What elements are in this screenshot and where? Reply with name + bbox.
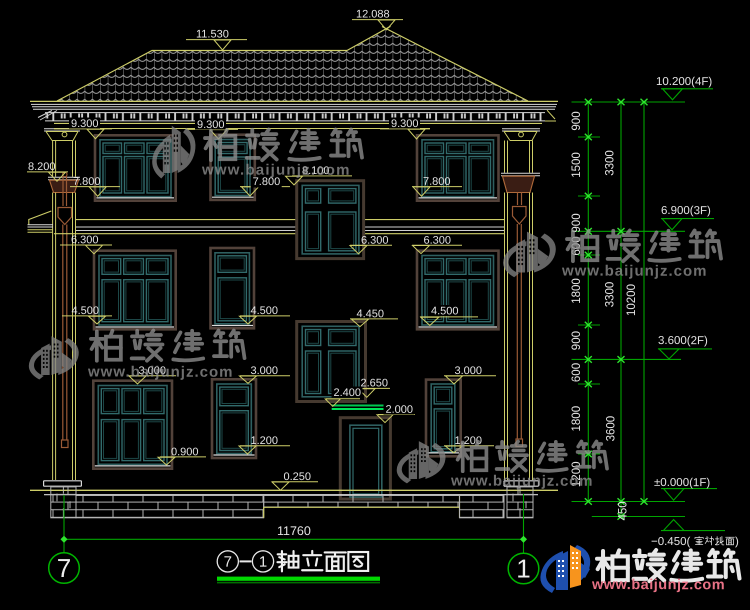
svg-text:2.400: 2.400: [333, 387, 361, 399]
svg-text:450: 450: [618, 501, 630, 520]
svg-text:www.baijunjz.com: www.baijunjz.com: [561, 262, 708, 279]
svg-text:www.baijunjz.com: www.baijunjz.com: [87, 363, 234, 380]
svg-text:0.900: 0.900: [171, 446, 199, 458]
svg-text:10200: 10200: [626, 284, 638, 316]
svg-text:11760: 11760: [277, 524, 311, 538]
svg-text:900: 900: [571, 111, 583, 130]
svg-text:4.500: 4.500: [250, 305, 278, 317]
svg-text:4.500: 4.500: [431, 305, 459, 317]
svg-text:9.300: 9.300: [71, 118, 99, 130]
svg-text:www.baijunjz.com: www.baijunjz.com: [201, 161, 351, 178]
svg-text:10.200(4F): 10.200(4F): [656, 76, 712, 88]
svg-text:6.900(3F): 6.900(3F): [661, 205, 711, 217]
svg-text:6.300: 6.300: [71, 234, 99, 246]
svg-text:900: 900: [571, 331, 583, 350]
svg-text:1800: 1800: [571, 278, 583, 304]
svg-text:7: 7: [224, 554, 232, 571]
svg-text:7.800: 7.800: [73, 176, 101, 188]
svg-text:3.600(2F): 3.600(2F): [658, 335, 708, 347]
svg-text:1500: 1500: [571, 152, 583, 178]
svg-text:12.088: 12.088: [356, 9, 390, 21]
svg-text:): ): [735, 536, 739, 548]
svg-text:1: 1: [259, 554, 267, 571]
svg-text:3600: 3600: [606, 416, 618, 442]
svg-text:3300: 3300: [605, 282, 617, 308]
svg-text:11.530: 11.530: [196, 29, 229, 41]
svg-text:3.000: 3.000: [454, 365, 482, 377]
svg-text:1800: 1800: [571, 406, 583, 432]
svg-text:4.450: 4.450: [356, 308, 384, 320]
svg-text:6.300: 6.300: [361, 235, 389, 247]
svg-text:2.650: 2.650: [360, 377, 388, 389]
svg-text:−0.450(: −0.450(: [651, 536, 691, 548]
svg-text:±0.000(1F): ±0.000(1F): [654, 477, 710, 489]
svg-text:7: 7: [57, 553, 72, 583]
svg-text:600: 600: [571, 363, 583, 382]
svg-text:1.200: 1.200: [250, 435, 278, 447]
svg-text:www.baijunjz.com: www.baijunjz.com: [591, 577, 725, 593]
svg-text:2.000: 2.000: [385, 404, 413, 416]
svg-text:9.300: 9.300: [391, 118, 419, 130]
svg-text:3300: 3300: [605, 150, 617, 176]
svg-text:www.baijunjz.com: www.baijunjz.com: [450, 472, 593, 489]
svg-text:3.000: 3.000: [250, 365, 278, 377]
svg-text:1: 1: [516, 553, 531, 583]
svg-text:7.800: 7.800: [423, 176, 451, 188]
svg-text:0.250: 0.250: [283, 471, 311, 483]
svg-text:6.300: 6.300: [423, 235, 451, 247]
svg-text:4.500: 4.500: [71, 305, 99, 317]
svg-text:8.200: 8.200: [28, 161, 56, 173]
